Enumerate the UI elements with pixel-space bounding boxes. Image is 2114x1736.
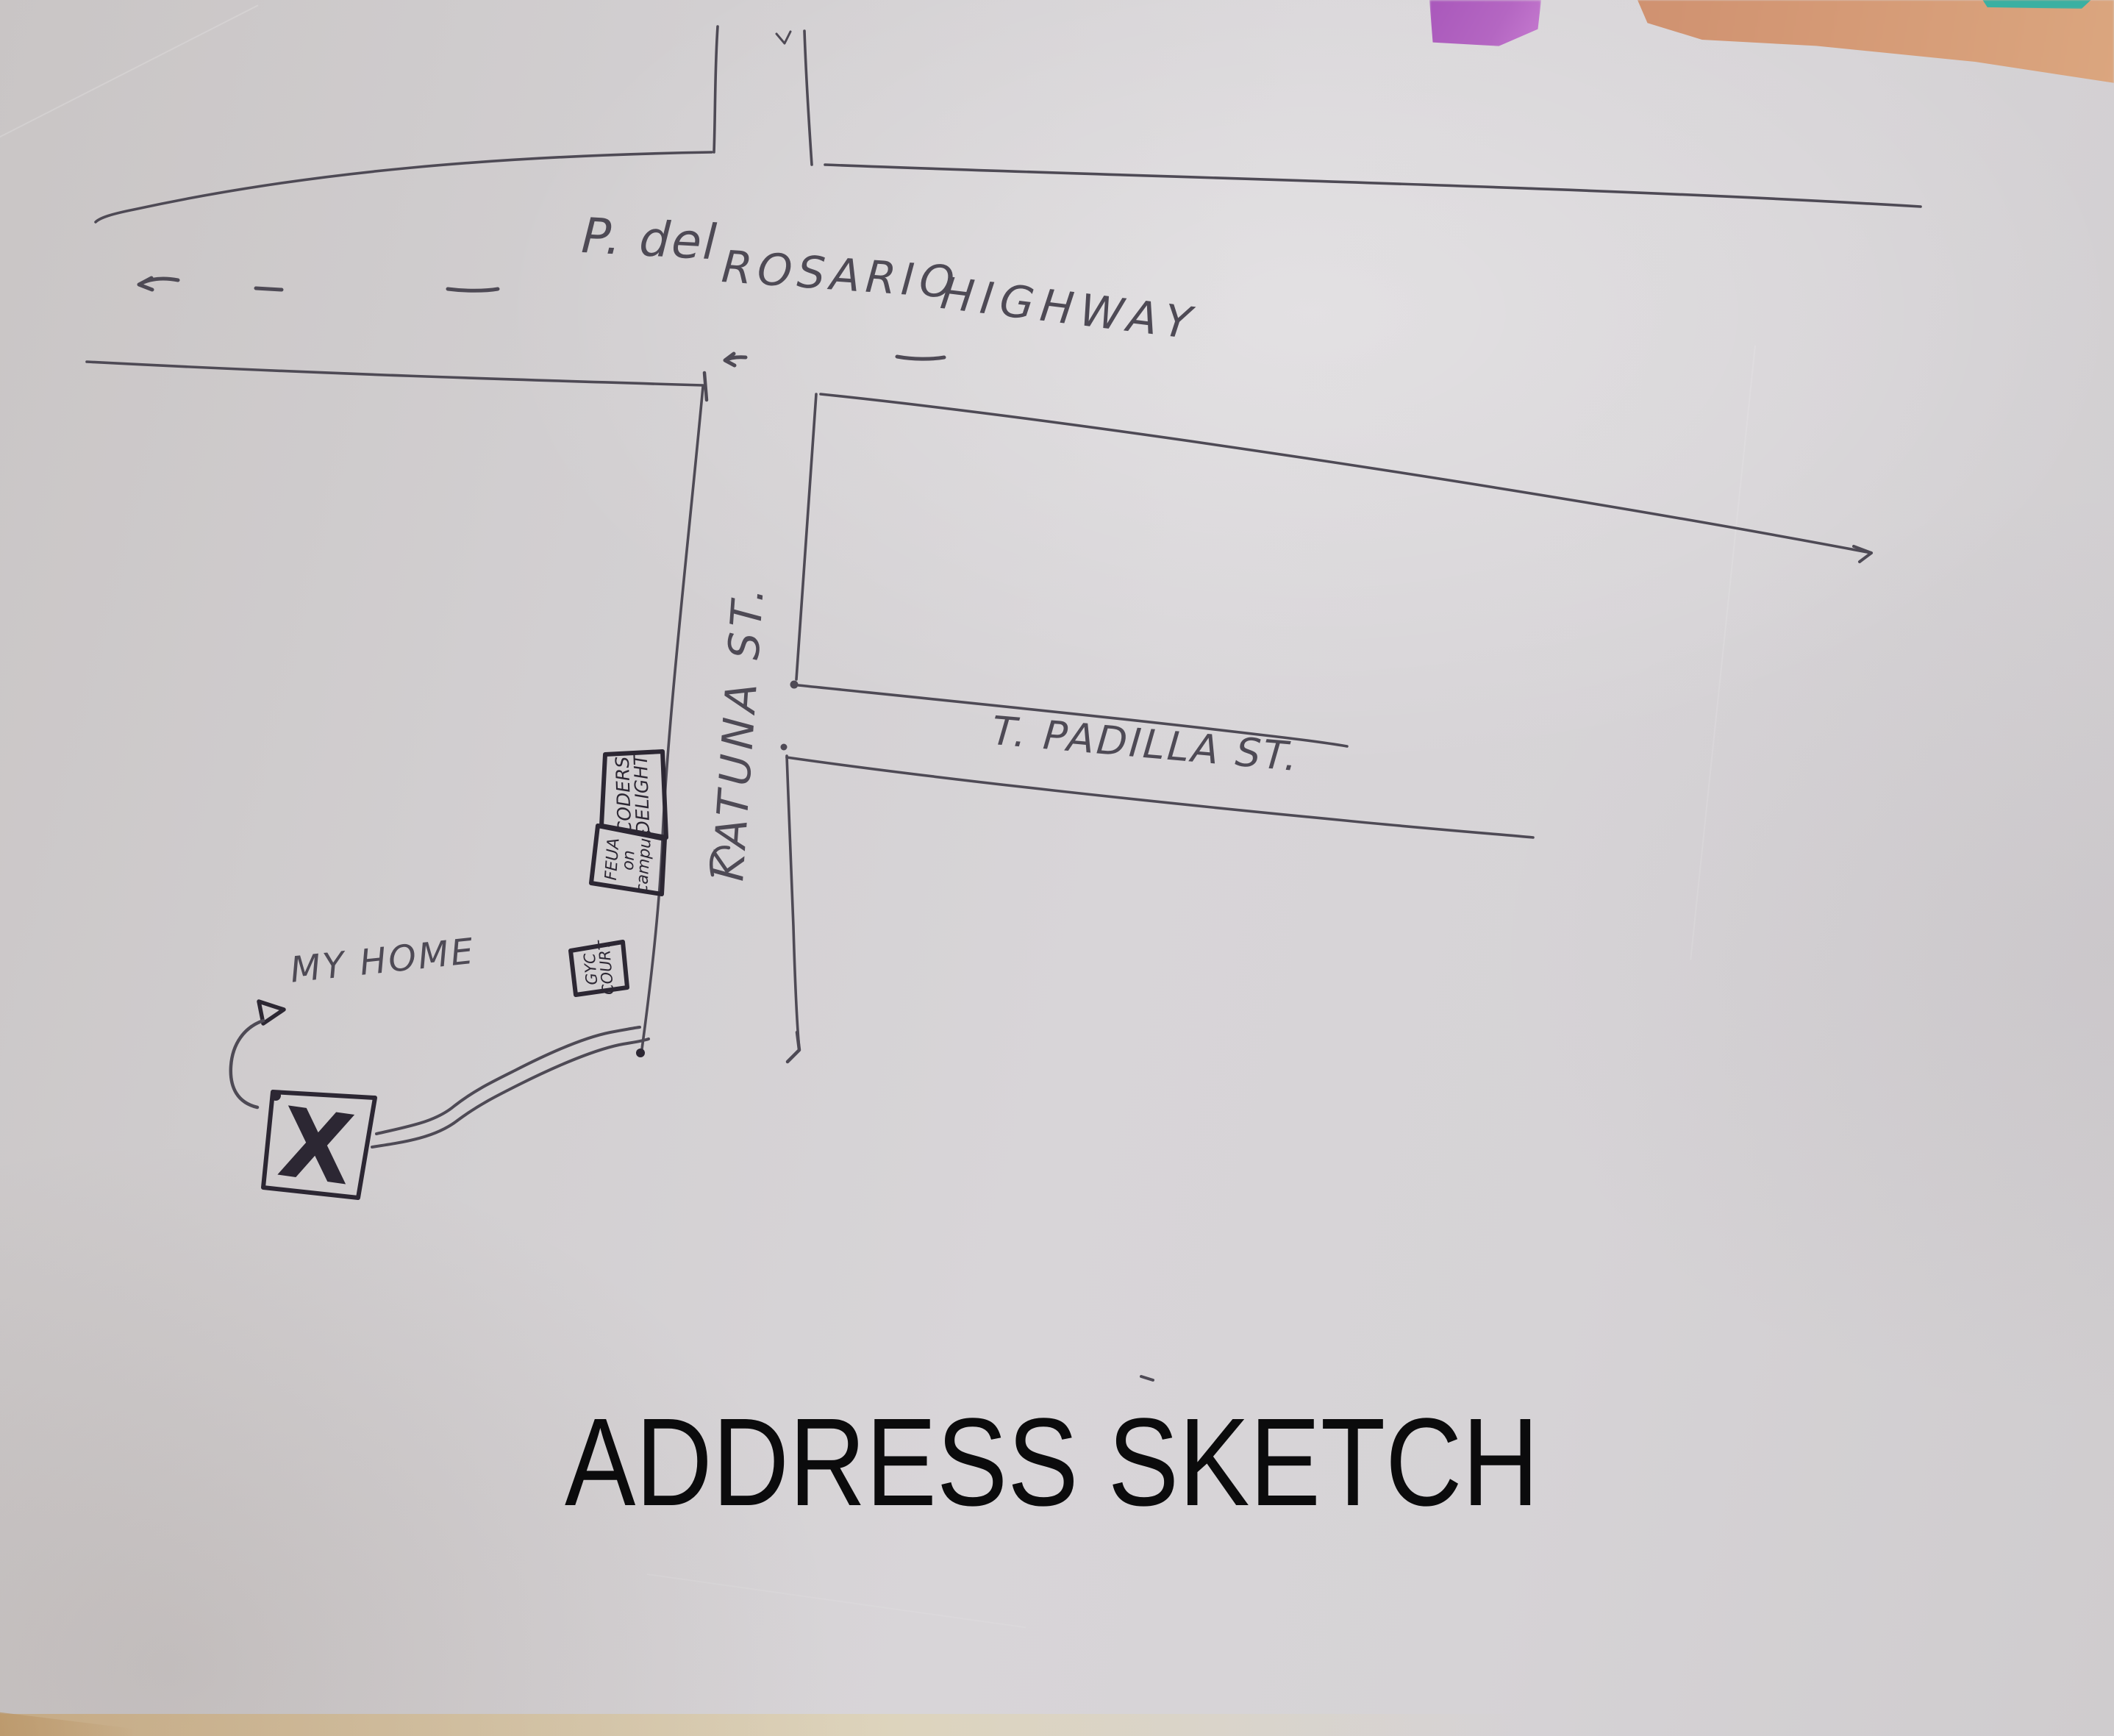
lane-dash xyxy=(448,289,498,290)
highway-bottom-left-line xyxy=(87,362,703,385)
address-sketch-title: ADDRESS SKETCH xyxy=(565,1400,1539,1525)
shop-box-label: CODERS DELIGHT xyxy=(614,754,653,835)
court-box-label: GYC COURT xyxy=(581,940,615,996)
junction-dot xyxy=(781,744,788,751)
stray-dash xyxy=(1141,1376,1153,1380)
my-home-hook-line xyxy=(231,1021,263,1107)
lane-dash-arrow xyxy=(725,354,746,365)
lane-dash xyxy=(897,357,944,359)
highway-label-part1: P. del xyxy=(580,207,719,271)
path-squiggle-upper xyxy=(376,1027,640,1134)
path-squiggle-lower xyxy=(372,1039,649,1147)
highway-top-right-line xyxy=(825,165,1921,207)
lane-dash xyxy=(256,288,282,290)
arrowhead xyxy=(1854,546,1871,562)
highway-bottom-right-line xyxy=(821,394,1871,553)
junction-tick xyxy=(704,373,707,400)
top-street-right-line xyxy=(804,31,812,165)
katuna-left-line xyxy=(641,387,703,1054)
katuna-right-line-upper xyxy=(796,394,816,679)
top-street-left-line xyxy=(714,26,718,152)
padilla-lower-line xyxy=(787,757,1533,837)
check-tick xyxy=(776,32,790,43)
arrowhead xyxy=(788,1032,799,1062)
junction-dot xyxy=(790,681,799,689)
ink-blob xyxy=(636,1049,645,1057)
address-sketch-photo: P. del ROSARIO HIGHWAY T. PADILLA ST. KA… xyxy=(0,0,2114,1736)
katuna-right-line-lower xyxy=(787,756,799,1050)
home-x-marker: X xyxy=(273,1087,360,1207)
campus-box-label: FEUA on campus xyxy=(603,827,655,894)
ink-blob xyxy=(271,1090,281,1101)
lane-dash-arrow xyxy=(139,278,178,290)
